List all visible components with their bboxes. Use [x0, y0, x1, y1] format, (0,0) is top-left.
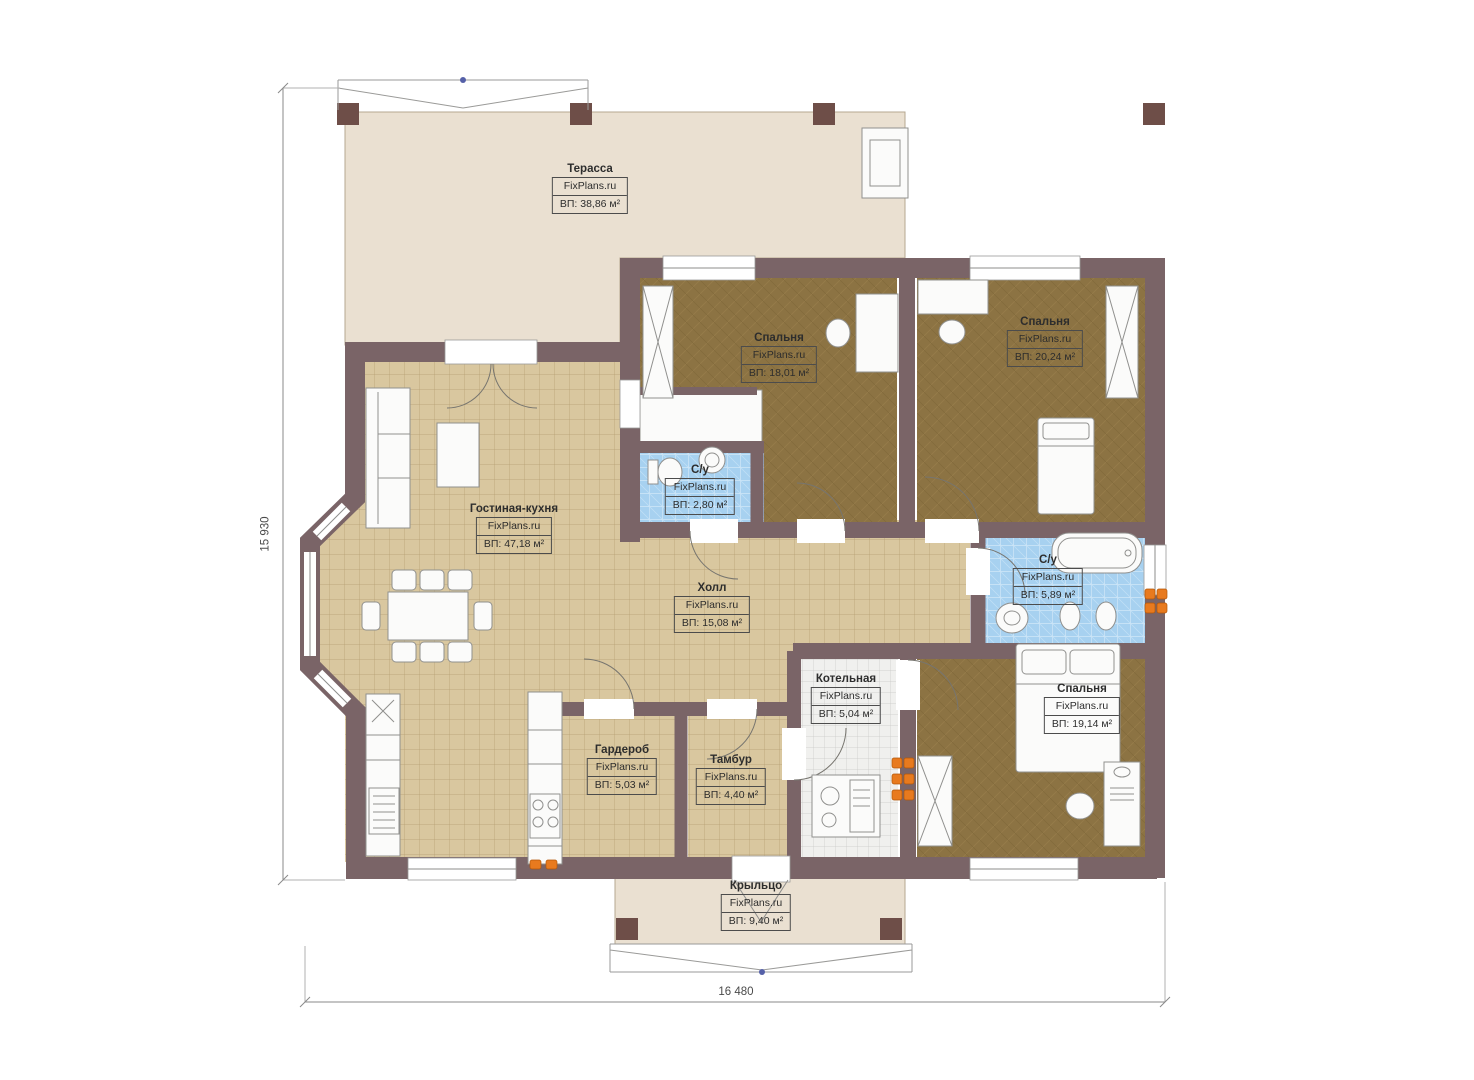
brand-text: FixPlans.ru — [588, 759, 656, 776]
room-area: ВП: 5,89 м² — [1014, 586, 1082, 604]
room-name: С/у — [1013, 554, 1083, 566]
room-label-boiler: Котельная FixPlans.ru ВП: 5,04 м² — [811, 673, 881, 724]
room-area: ВП: 5,04 м² — [812, 705, 880, 723]
room-name: Гостиная-кухня — [470, 503, 558, 515]
room-label-living-kitchen: Гостиная-кухня FixPlans.ru ВП: 47,18 м² — [470, 503, 558, 554]
room-name: Спальня — [1007, 316, 1083, 328]
room-area: ВП: 20,24 м² — [1008, 348, 1082, 366]
sofa — [366, 388, 410, 528]
room-area: ВП: 2,80 м² — [666, 496, 734, 514]
room-label-bedroom-2: Спальня FixPlans.ru ВП: 20,24 м² — [1007, 316, 1083, 367]
room-label-hall: Холл FixPlans.ru ВП: 15,08 м² — [674, 582, 750, 633]
room-name: Терасса — [552, 163, 628, 175]
dimension-height: 15 930 — [260, 516, 272, 551]
canopy-marker-dot — [759, 969, 765, 975]
brand-text: FixPlans.ru — [1008, 331, 1082, 348]
room-name: Тамбур — [696, 754, 766, 766]
room-area: ВП: 38,86 м² — [553, 195, 627, 213]
brand-text: FixPlans.ru — [666, 479, 734, 496]
entry-door-opening — [732, 856, 790, 882]
room-name: Котельная — [811, 673, 881, 685]
brand-text: FixPlans.ru — [697, 769, 765, 786]
room-name: Спальня — [741, 332, 817, 344]
room-label-bathroom-2: С/у FixPlans.ru ВП: 5,89 м² — [1013, 554, 1083, 605]
desk-chair — [1066, 793, 1094, 819]
room-area: ВП: 4,40 м² — [697, 786, 765, 804]
boiler-equipment — [812, 775, 880, 837]
bedroom2-wardrobe — [1106, 286, 1138, 398]
terrace-door-opening — [445, 340, 537, 364]
room-name: Крыльцо — [721, 880, 791, 892]
vestibule-door-opening — [707, 699, 757, 719]
bedroom1-door-opening — [620, 380, 640, 428]
bedroom2-door-opening — [925, 519, 979, 543]
desk-chair — [939, 320, 965, 344]
brand-text: FixPlans.ru — [675, 597, 749, 614]
sink-icon — [996, 603, 1028, 633]
bathroom1-door-opening — [690, 519, 738, 543]
brand-text: FixPlans.ru — [742, 347, 816, 364]
room-area: ВП: 15,08 м² — [675, 614, 749, 632]
canopy-marker-dot — [460, 77, 466, 83]
toilet-tank — [648, 460, 658, 484]
bathroom2-door-opening — [966, 548, 990, 595]
room-label-bathroom-1: С/у FixPlans.ru ВП: 2,80 м² — [665, 464, 735, 515]
room-name: С/у — [665, 464, 735, 476]
wardrobe-door-opening — [584, 699, 634, 719]
terrace-fireplace — [862, 128, 908, 198]
room-area: ВП: 19,14 м² — [1045, 715, 1119, 733]
terrace-post — [570, 103, 592, 125]
porch-canopy — [610, 944, 912, 975]
floor-plan-canvas: Терасса FixPlans.ru ВП: 38,86 м² Спальня… — [0, 0, 1474, 1080]
room-area: ВП: 18,01 м² — [742, 364, 816, 382]
kitchen-island — [528, 692, 562, 864]
toilet-icon — [1060, 602, 1080, 630]
fridge — [369, 788, 399, 834]
terrace-post — [337, 103, 359, 125]
room-label-vestibule: Тамбур FixPlans.ru ВП: 4,40 м² — [696, 754, 766, 805]
corner-post — [1143, 103, 1165, 125]
brand-text: FixPlans.ru — [812, 688, 880, 705]
porch-post — [616, 918, 638, 940]
room-name: Спальня — [1044, 683, 1120, 695]
terrace-canopy — [338, 77, 588, 110]
brand-text: FixPlans.ru — [722, 895, 790, 912]
bedroom3-wardrobe — [918, 756, 952, 846]
porch-post — [880, 918, 902, 940]
room-area: ВП: 9,40 м² — [722, 912, 790, 930]
brand-text: FixPlans.ru — [477, 518, 551, 535]
room-area: ВП: 5,03 м² — [588, 776, 656, 794]
room-label-terrace: Терасса FixPlans.ru ВП: 38,86 м² — [552, 163, 628, 214]
bedroom2-bed — [1038, 418, 1094, 514]
bidet-icon — [1096, 602, 1116, 630]
desk-chair — [826, 319, 850, 347]
room-label-porch: Крыльцо FixPlans.ru ВП: 9,40 м² — [721, 880, 791, 931]
brand-text: FixPlans.ru — [553, 178, 627, 195]
coffee-table — [437, 423, 479, 487]
room-name: Холл — [674, 582, 750, 594]
kitchen-counter — [366, 694, 400, 856]
hall-floor — [620, 520, 970, 655]
room-area: ВП: 47,18 м² — [477, 535, 551, 553]
room-name: Гардероб — [587, 744, 657, 756]
room-label-bedroom-1: Спальня FixPlans.ru ВП: 18,01 м² — [741, 332, 817, 383]
room-label-bedroom-3: Спальня FixPlans.ru ВП: 19,14 м² — [1044, 683, 1120, 734]
dimension-width: 16 480 — [718, 986, 753, 998]
bedroom3-door-opening — [896, 660, 920, 710]
brand-text: FixPlans.ru — [1014, 569, 1082, 586]
bedroom1-wardrobe — [643, 286, 673, 398]
brand-text: FixPlans.ru — [1045, 698, 1119, 715]
terrace-post — [813, 103, 835, 125]
boiler-door-opening — [782, 728, 806, 780]
room-label-wardrobe: Гардероб FixPlans.ru ВП: 5,03 м² — [587, 744, 657, 795]
bedroom1-hall-door-opening — [797, 519, 845, 543]
